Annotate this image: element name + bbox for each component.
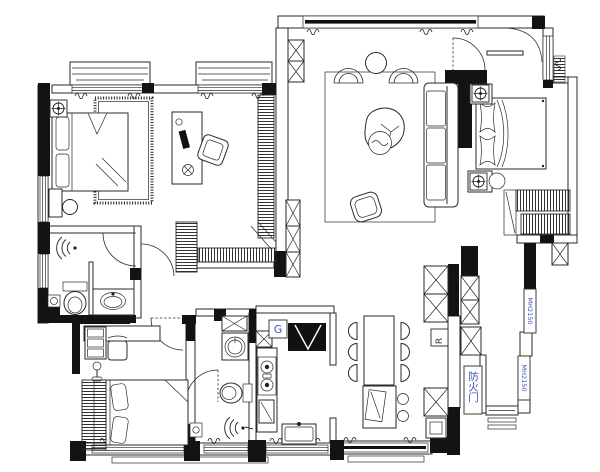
cutting-board (259, 400, 274, 423)
wardrobe-bedroom3 (82, 380, 106, 450)
column-center (286, 200, 300, 277)
fridge-label: R (435, 338, 445, 344)
window-left-wall-lower (40, 254, 48, 288)
vestibule-shelf (487, 51, 523, 55)
double-bed (52, 113, 128, 191)
lamp-icon-top (472, 85, 489, 102)
balcony-step-right (348, 456, 424, 462)
ac-unit-icon (50, 100, 67, 117)
toilet-2 (220, 383, 252, 403)
column-living-nw (288, 40, 304, 82)
cooktop (258, 357, 276, 395)
range-hood (288, 323, 326, 351)
window-code-bottom-label: MH2150 (520, 364, 528, 391)
bay-window-left-2 (196, 62, 272, 85)
floor-lamp (92, 362, 102, 381)
window-dining-south (338, 443, 428, 452)
shower-icon (57, 237, 77, 259)
window-top-wall-1 (72, 85, 148, 93)
dining-room (349, 316, 410, 428)
entry-door (486, 406, 518, 429)
fire-door-label: 防火门 (467, 370, 479, 403)
dresser (49, 189, 62, 217)
bay-window-left-1 (70, 62, 150, 85)
dining-table (364, 316, 394, 385)
pantry-cabinet-low (424, 388, 448, 438)
column-bedroom2-se (552, 243, 568, 265)
floor-plan-drawing: G (0, 0, 600, 472)
ensuite-door (103, 233, 136, 266)
gas-meter-label: G (274, 323, 283, 336)
ottoman (349, 190, 384, 223)
sideboard (363, 386, 409, 428)
vanity-ensuite (93, 289, 134, 315)
toilet-ensuite (63, 282, 87, 315)
lamp-icon-bottom (470, 173, 487, 190)
floor-drain-ensuite (48, 295, 60, 307)
window-code-top-label: MH2150 (526, 297, 534, 324)
window-vestibule-right (543, 36, 565, 82)
fridge-niche: R (431, 329, 448, 346)
armchair-right (389, 69, 418, 84)
vanity-2 (222, 333, 248, 360)
pantry-cabinet-tall (424, 266, 448, 322)
study-area (172, 95, 274, 238)
bedroom2-door (453, 38, 485, 70)
stool (63, 200, 78, 215)
column-entry (461, 276, 481, 355)
bathroom-2 (190, 333, 253, 439)
bedroom-3 (82, 326, 188, 450)
gas-meter: G (269, 320, 287, 338)
side-table (366, 53, 387, 74)
bed-2 (476, 98, 546, 169)
window-kitchen-south (266, 445, 328, 453)
coffee-table (365, 108, 404, 155)
kitchen-sink (282, 422, 316, 444)
desk-speaker-icon (183, 165, 194, 176)
rounded-corner (506, 28, 542, 62)
floor-plan-canvas: G (0, 0, 600, 472)
fire-door-label-box: 防火门 (464, 366, 482, 414)
entry: 防火门 (464, 366, 518, 429)
cabinet-bath-top (222, 316, 247, 331)
window-code-box-top: MH2150 (524, 289, 536, 333)
window-code-box-bottom: MH2150 (518, 356, 530, 400)
window-top-wall-2 (198, 85, 270, 93)
sofa (424, 83, 458, 207)
suite-door (141, 244, 174, 276)
bed-3 (106, 380, 188, 445)
drawer-unit (85, 327, 106, 359)
window-left-wall-upper (40, 176, 48, 222)
window-living-top (303, 16, 478, 28)
shower-icon-2 (225, 417, 245, 439)
master-bedroom (49, 98, 152, 217)
floor-drain-2 (190, 423, 202, 437)
window-bath-south (204, 445, 248, 453)
wardrobe-bedroom2 (504, 190, 570, 235)
vase (489, 173, 505, 189)
armchair-left (334, 69, 363, 84)
wardrobe-study (258, 95, 274, 238)
